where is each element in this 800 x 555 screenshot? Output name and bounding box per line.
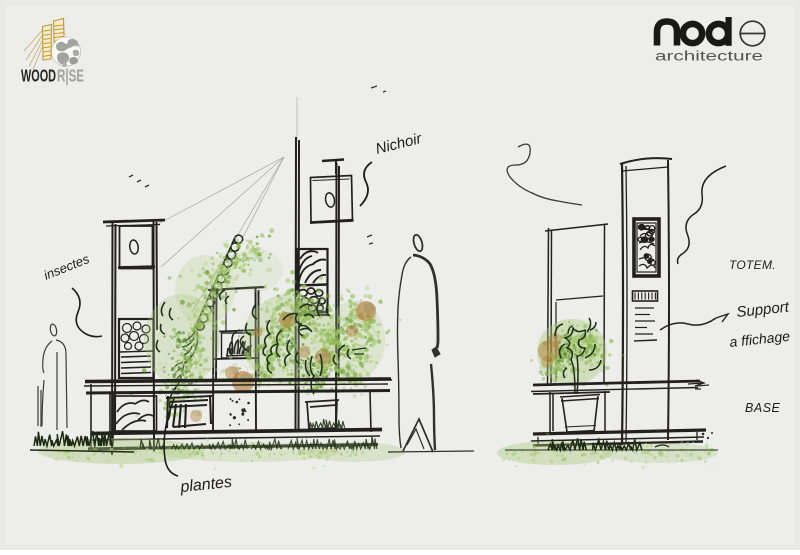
svg-text:BASE: BASE <box>745 401 781 415</box>
svg-text:TOTEM.: TOTEM. <box>729 258 776 272</box>
svg-text:WOOD: WOOD <box>21 66 56 86</box>
svg-text:architecture: architecture <box>655 49 763 64</box>
svg-text:R|SE: R|SE <box>57 66 84 86</box>
